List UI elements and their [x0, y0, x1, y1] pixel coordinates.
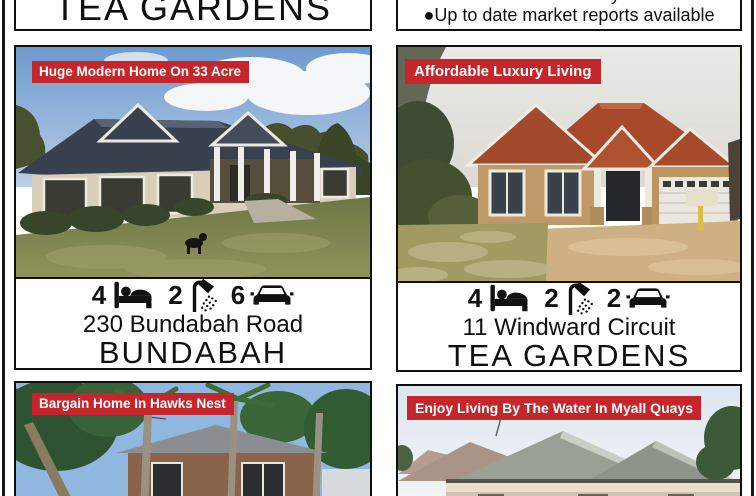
property-card-myall-quays: Enjoy Living By The Water In Myall Quays	[396, 384, 742, 496]
car-icon	[250, 280, 294, 310]
listing-banner: Enjoy Living By The Water In Myall Quays	[407, 396, 701, 420]
listing-stats: 4 2	[468, 281, 670, 315]
property-photo: Huge Modern Home On 33 Acre	[16, 47, 370, 279]
flyer-page: TEA GARDENS ●Permanent holiday rentals ●…	[0, 0, 756, 496]
bed-icon	[487, 283, 531, 313]
property-card-hawks-nest: Bargain Home In Hawks Nest	[14, 381, 372, 496]
listing-suburb: BUNDABAH	[99, 337, 287, 369]
cars-count: 2	[607, 285, 621, 311]
cars-count: 6	[231, 282, 245, 308]
listing-banner: Bargain Home In Hawks Nest	[32, 393, 234, 415]
listing-info: 4 2	[398, 283, 740, 370]
beds-count: 4	[92, 282, 106, 308]
page-border-right	[751, 0, 754, 496]
property-card-tea-gardens: Affordable Luxury Living 4 2	[396, 45, 742, 372]
property-photo: Enjoy Living By The Water In Myall Quays	[398, 386, 740, 496]
listing-address: 11 Windward Circuit	[463, 315, 676, 340]
listing-info: 4 2	[16, 279, 370, 368]
top-card-remnant: TEA GARDENS	[14, 0, 372, 31]
property-photo: Affordable Luxury Living	[398, 47, 740, 283]
listing-address: 230 Bundabah Road	[83, 312, 303, 337]
listing-banner: Affordable Luxury Living	[405, 59, 601, 84]
baths-count: 2	[168, 282, 182, 308]
car-icon	[626, 283, 670, 313]
shower-icon	[564, 281, 594, 315]
suburb-label: TEA GARDENS	[54, 0, 332, 29]
listing-banner: Huge Modern Home On 33 Acre	[32, 61, 249, 83]
beds-count: 4	[468, 285, 482, 311]
bed-icon	[111, 280, 155, 310]
listing-stats: 4 2	[92, 278, 294, 312]
baths-count: 2	[544, 285, 558, 311]
property-card-bundabah: Huge Modern Home On 33 Acre 4 2	[14, 45, 372, 370]
page-border-left	[2, 0, 5, 496]
listing-suburb: TEA GARDENS	[448, 340, 691, 372]
property-photo: Bargain Home In Hawks Nest	[16, 383, 370, 496]
bullet-item: ●Up to date market reports available	[423, 5, 714, 26]
shower-icon	[188, 278, 218, 312]
agency-info-box: ●Permanent holiday rentals ●Up to date m…	[396, 0, 742, 31]
